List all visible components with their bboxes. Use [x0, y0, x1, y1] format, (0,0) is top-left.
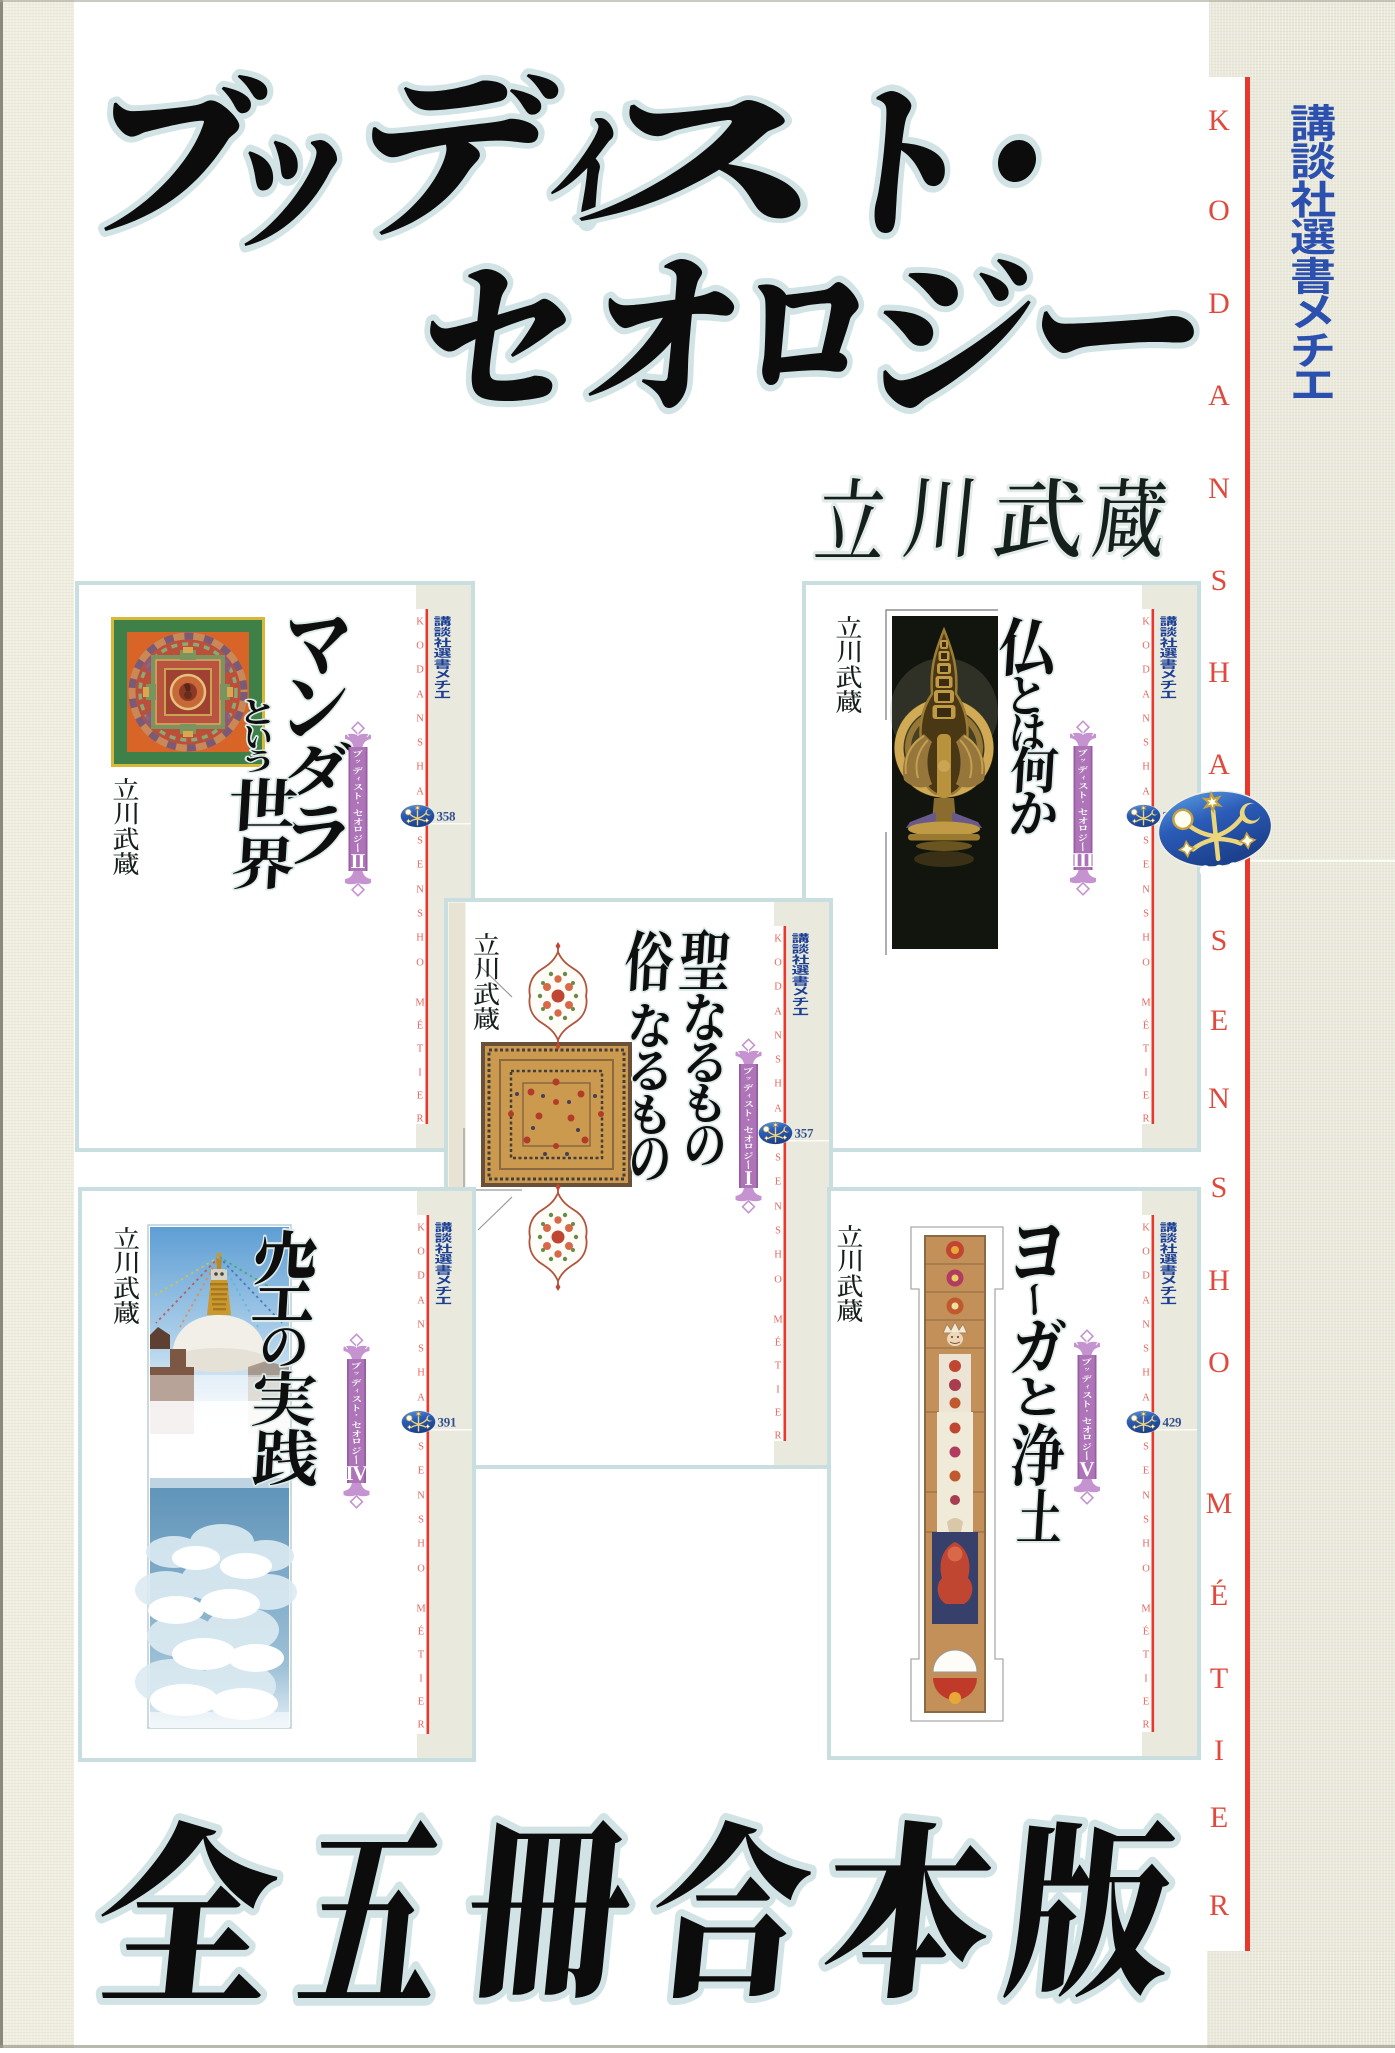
- svg-text:O: O: [416, 958, 424, 969]
- svg-text:S: S: [1143, 836, 1149, 847]
- svg-text:R: R: [1209, 1889, 1229, 1922]
- svg-text:S: S: [1211, 1171, 1228, 1204]
- svg-text:E: E: [1143, 860, 1149, 871]
- svg-text:M: M: [1206, 1487, 1233, 1520]
- svg-text:T: T: [1143, 1650, 1150, 1661]
- svg-text:O: O: [1142, 641, 1150, 652]
- svg-text:E: E: [1143, 1697, 1149, 1708]
- svg-text:N: N: [1142, 1491, 1150, 1502]
- svg-text:D: D: [1208, 287, 1230, 320]
- svg-text:O: O: [1142, 1564, 1150, 1575]
- svg-text:O: O: [417, 1564, 425, 1575]
- svg-text:M: M: [416, 1604, 426, 1615]
- svg-text:A: A: [1142, 1393, 1150, 1404]
- svg-text:E: E: [1210, 1004, 1228, 1037]
- svg-text:É: É: [775, 1337, 781, 1349]
- svg-text:O: O: [1142, 958, 1150, 969]
- svg-text:D: D: [416, 665, 424, 676]
- svg-text:O: O: [416, 641, 424, 652]
- svg-text:E: E: [1143, 1091, 1149, 1102]
- svg-text:H: H: [1208, 656, 1230, 689]
- svg-text:N: N: [416, 885, 424, 896]
- svg-text:K: K: [1142, 1223, 1150, 1234]
- svg-text:A: A: [774, 1007, 782, 1018]
- svg-text:T: T: [417, 1044, 424, 1055]
- svg-text:T: T: [418, 1650, 425, 1661]
- svg-text:H: H: [416, 762, 424, 773]
- svg-text:M: M: [773, 1315, 783, 1326]
- svg-text:T: T: [1143, 1044, 1150, 1055]
- svg-text:N: N: [417, 1320, 425, 1331]
- svg-text:E: E: [417, 860, 423, 871]
- svg-text:H: H: [1142, 1539, 1150, 1550]
- svg-text:K: K: [774, 934, 782, 945]
- svg-text:E: E: [418, 1697, 424, 1708]
- svg-text:A: A: [417, 1393, 425, 1404]
- svg-text:A: A: [774, 1104, 782, 1115]
- svg-text:E: E: [775, 1177, 781, 1188]
- svg-text:A: A: [416, 787, 424, 798]
- svg-text:O: O: [774, 1275, 782, 1286]
- svg-text:H: H: [774, 1079, 782, 1090]
- svg-text:M: M: [415, 998, 425, 1009]
- svg-text:M: M: [1141, 1604, 1151, 1615]
- svg-text:D: D: [774, 982, 782, 993]
- svg-text:N: N: [1208, 472, 1230, 505]
- svg-text:N: N: [1142, 1320, 1150, 1331]
- svg-text:A: A: [417, 1296, 425, 1307]
- svg-text:N: N: [1208, 1082, 1230, 1115]
- svg-text:É: É: [1143, 1626, 1149, 1638]
- svg-text:S: S: [1143, 1344, 1149, 1355]
- svg-text:S: S: [418, 1515, 424, 1526]
- svg-text:O: O: [417, 1247, 425, 1258]
- svg-text:N: N: [774, 1031, 782, 1042]
- svg-text:S: S: [418, 1442, 424, 1453]
- svg-text:S: S: [1211, 924, 1228, 957]
- svg-text:N: N: [416, 714, 424, 725]
- svg-text:H: H: [1142, 762, 1150, 773]
- svg-text:E: E: [775, 1408, 781, 1419]
- svg-text:T: T: [775, 1361, 782, 1372]
- svg-text:H: H: [774, 1250, 782, 1261]
- svg-text:R: R: [1142, 1114, 1149, 1125]
- svg-text:A: A: [1208, 748, 1230, 781]
- svg-text:N: N: [774, 1202, 782, 1213]
- svg-text:H: H: [1142, 1368, 1150, 1379]
- svg-text:S: S: [417, 836, 423, 847]
- svg-text:D: D: [417, 1271, 425, 1282]
- svg-text:R: R: [774, 1431, 781, 1442]
- svg-text:S: S: [775, 1153, 781, 1164]
- svg-text:H: H: [417, 1539, 425, 1550]
- svg-text:O: O: [774, 958, 782, 969]
- svg-text:A: A: [1208, 379, 1230, 412]
- svg-text:I: I: [1144, 1674, 1148, 1685]
- svg-text:I: I: [1144, 1068, 1148, 1079]
- svg-text:E: E: [1143, 1466, 1149, 1477]
- svg-text:É: É: [418, 1626, 424, 1638]
- svg-text:R: R: [1142, 1720, 1149, 1731]
- svg-text:I: I: [419, 1674, 423, 1685]
- svg-text:S: S: [417, 738, 423, 749]
- svg-text:É: É: [1143, 1020, 1149, 1032]
- svg-text:H: H: [1208, 1264, 1230, 1297]
- svg-text:O: O: [1208, 1346, 1230, 1379]
- svg-text:K: K: [417, 1223, 425, 1234]
- svg-text:S: S: [1143, 909, 1149, 920]
- svg-text:N: N: [1142, 885, 1150, 896]
- svg-text:O: O: [1142, 1247, 1150, 1258]
- svg-text:S: S: [417, 909, 423, 920]
- svg-text:É: É: [1210, 1579, 1228, 1612]
- svg-text:T: T: [1210, 1662, 1228, 1695]
- svg-text:H: H: [1142, 933, 1150, 944]
- svg-text:E: E: [1210, 1801, 1228, 1834]
- svg-text:K: K: [1208, 104, 1230, 137]
- svg-text:A: A: [416, 690, 424, 701]
- svg-text:I: I: [418, 1068, 422, 1079]
- svg-text:R: R: [417, 1720, 424, 1731]
- svg-text:D: D: [1142, 1271, 1150, 1282]
- svg-text:K: K: [416, 617, 424, 628]
- svg-text:N: N: [417, 1491, 425, 1502]
- svg-text:A: A: [1142, 787, 1150, 798]
- svg-text:N: N: [1142, 714, 1150, 725]
- svg-text:K: K: [1142, 617, 1150, 628]
- svg-text:E: E: [418, 1466, 424, 1477]
- svg-text:É: É: [417, 1020, 423, 1032]
- svg-text:S: S: [1143, 1442, 1149, 1453]
- svg-text:O: O: [1208, 194, 1230, 227]
- svg-text:S: S: [418, 1344, 424, 1355]
- svg-text:I: I: [1214, 1734, 1224, 1767]
- svg-text:A: A: [1142, 1296, 1150, 1307]
- svg-text:A: A: [1142, 690, 1150, 701]
- svg-text:I: I: [776, 1385, 780, 1396]
- svg-text:S: S: [1211, 564, 1228, 597]
- svg-text:S: S: [1143, 738, 1149, 749]
- svg-text:R: R: [416, 1114, 423, 1125]
- svg-text:S: S: [775, 1055, 781, 1066]
- svg-text:H: H: [416, 933, 424, 944]
- svg-text:E: E: [417, 1091, 423, 1102]
- svg-text:H: H: [417, 1368, 425, 1379]
- svg-text:M: M: [1141, 998, 1151, 1009]
- svg-text:S: S: [775, 1226, 781, 1237]
- svg-text:S: S: [1143, 1515, 1149, 1526]
- svg-text:D: D: [1142, 665, 1150, 676]
